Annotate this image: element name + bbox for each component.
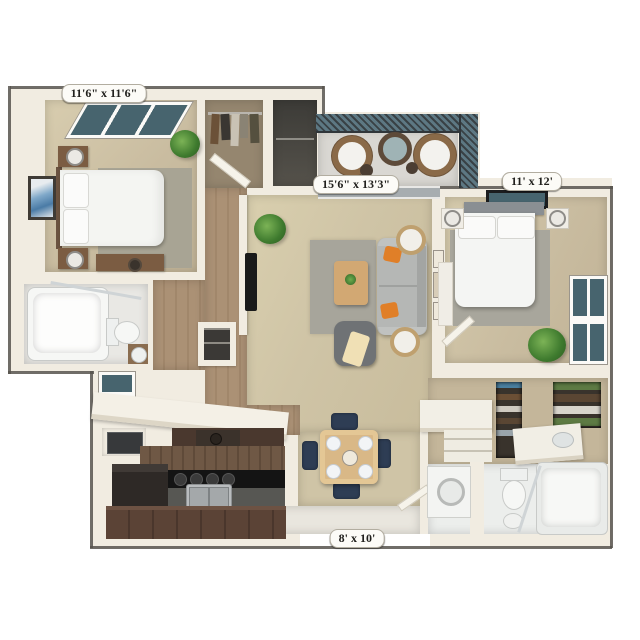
balcony-screen-top bbox=[316, 114, 476, 133]
outer-edge-top bbox=[10, 86, 324, 89]
kitchen-dimension-label: 8' x 10' bbox=[330, 529, 385, 548]
outer-edge-right bbox=[610, 186, 613, 548]
bedroom2-window bbox=[570, 276, 607, 364]
closet-clothes-3 bbox=[230, 114, 239, 146]
tv bbox=[245, 253, 257, 311]
closet-clothes-5 bbox=[249, 114, 259, 143]
balcony-bistro-table bbox=[378, 132, 412, 166]
balcony-chair-right bbox=[414, 134, 456, 176]
closet-clothes-4 bbox=[240, 114, 248, 138]
plate-4 bbox=[358, 464, 373, 479]
bedroom2-dimension-label: 11' x 12' bbox=[502, 172, 562, 191]
dining-chair-south bbox=[333, 482, 360, 499]
built-in-desk bbox=[420, 400, 492, 432]
sofa-pillow-bottom bbox=[380, 302, 399, 320]
desk-shelves bbox=[444, 430, 492, 462]
bedroom1-window bbox=[66, 102, 193, 138]
living-dimension-label: 15'6" x 13'3" bbox=[313, 175, 399, 194]
plate-1 bbox=[326, 436, 341, 451]
sofa-cushion-line bbox=[379, 285, 417, 287]
washer-door bbox=[437, 478, 465, 506]
coffee-table-plant bbox=[345, 274, 356, 285]
burner-1 bbox=[174, 473, 187, 486]
bathroom1-sink bbox=[131, 347, 147, 363]
floor-plan-image: 11'6" x 11'6" 15'6" x 13'3" 11' x 12' 8'… bbox=[0, 0, 640, 640]
bathroom2-toilet-bowl bbox=[502, 480, 526, 510]
side-table-lamp-north bbox=[396, 225, 426, 255]
bathroom2-sink bbox=[552, 432, 574, 448]
bathroom1-toilet-bowl bbox=[114, 321, 140, 344]
utility-closet-rail bbox=[276, 138, 314, 140]
bathroom1-tub-basin bbox=[33, 293, 101, 353]
bedroom1-pillow-2 bbox=[63, 209, 89, 244]
plate-2 bbox=[358, 436, 373, 451]
closet-clothes-2 bbox=[220, 114, 230, 140]
bedroom1-pillow-1 bbox=[63, 173, 89, 208]
bedroom2-lamp-east bbox=[549, 210, 566, 227]
bedroom2-plant bbox=[528, 328, 566, 362]
bedroom1-dresser-decor bbox=[128, 258, 142, 272]
microwave bbox=[107, 432, 143, 454]
balcony-screen-right bbox=[459, 114, 478, 188]
bedroom1-wall-art bbox=[28, 176, 56, 220]
linen-closet-shelves bbox=[553, 382, 601, 428]
lower-cabinets bbox=[106, 506, 286, 539]
plate-3 bbox=[326, 464, 341, 479]
side-table-lamp-south bbox=[390, 327, 420, 357]
dining-chair-north bbox=[331, 413, 358, 430]
hall-pantry-shelves bbox=[204, 328, 230, 360]
outer-edge-bath-bottom bbox=[8, 371, 94, 374]
bedroom2-pillow-2 bbox=[497, 216, 535, 239]
bedroom1-plant bbox=[170, 130, 200, 158]
bedroom2-lamp-west bbox=[444, 210, 461, 227]
bedroom1-lamp-north bbox=[66, 148, 84, 166]
centerpiece bbox=[342, 450, 358, 466]
closet-clothes-1 bbox=[210, 114, 220, 144]
bedroom1-lamp-south bbox=[66, 251, 84, 269]
hood-vent bbox=[210, 433, 222, 445]
utility-closet-floor bbox=[273, 100, 317, 186]
bathroom2-tub-basin bbox=[541, 468, 601, 527]
bedroom1-dimension-label: 11'6" x 11'6" bbox=[62, 84, 147, 103]
sofa-back bbox=[417, 240, 426, 333]
dining-chair-west bbox=[302, 441, 318, 470]
outer-edge-left bbox=[8, 86, 11, 374]
balcony-side-table-2 bbox=[406, 162, 418, 174]
bathroom2-divider-wall bbox=[470, 462, 484, 534]
bathroom2-vanity bbox=[513, 423, 584, 465]
bedroom2-dresser bbox=[438, 262, 453, 326]
living-plant bbox=[254, 214, 286, 244]
outer-edge-closet-right bbox=[322, 86, 325, 114]
